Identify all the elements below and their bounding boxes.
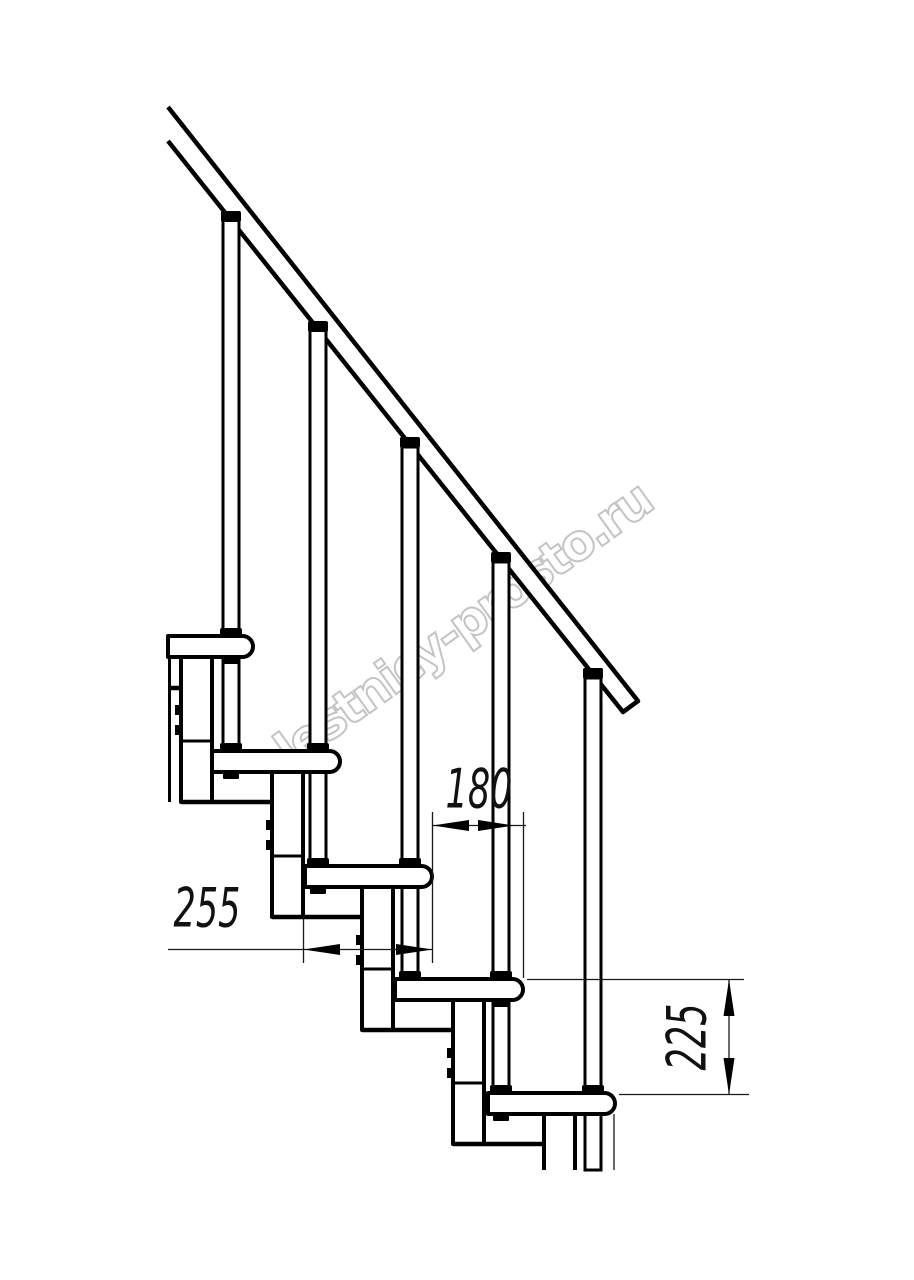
tread-collar-4b <box>490 971 512 980</box>
staircase-technical-drawing: lestnicy-prosto.ru <box>0 0 914 1280</box>
drawing-canvas: lestnicy-prosto.ru <box>0 0 914 1280</box>
tread-nut-2 <box>223 772 239 779</box>
arrowhead-left <box>304 944 341 955</box>
tread-2 <box>212 751 340 772</box>
module-bolt-2b <box>266 840 273 850</box>
tread-collar-3b <box>399 858 421 867</box>
rail-mount-3 <box>400 437 420 448</box>
arrowhead-up <box>724 980 735 1017</box>
tread-nut-5 <box>493 1114 509 1121</box>
baluster-rod-2 <box>310 331 326 867</box>
dimension-run: 180 <box>433 758 527 978</box>
stringer-module-1 <box>181 657 212 802</box>
tread-collar-3a <box>307 858 329 867</box>
tread-collar-4a <box>399 971 421 980</box>
dimension-label-rise: 225 <box>656 1004 719 1071</box>
module-bolt-4a <box>447 1048 454 1058</box>
module-bolt-3b <box>356 955 363 965</box>
dimension-rise: 225 <box>527 980 749 1095</box>
tread-3 <box>305 866 432 887</box>
module-bolt-2a <box>266 820 273 830</box>
module-bolt-1a <box>175 705 182 715</box>
tread-nut-3 <box>310 887 326 894</box>
baluster-rod-3 <box>402 447 418 979</box>
arrowhead-down <box>724 1058 735 1095</box>
stringer-module-4 <box>453 1000 484 1144</box>
stringer-module-5 <box>544 1114 575 1170</box>
tread-1 <box>168 636 253 657</box>
tread-4 <box>395 979 523 1000</box>
module-bolt-3a <box>356 935 363 945</box>
arrowhead-left <box>433 820 470 831</box>
dimension-label-depth: 255 <box>174 877 241 940</box>
module-bolt-1b <box>175 725 182 735</box>
stringer-module-3 <box>362 887 393 1030</box>
stringer-module-2 <box>272 772 303 917</box>
tread-collar-5b <box>582 1085 604 1094</box>
tread-collar-2a <box>220 743 242 752</box>
tread-5 <box>488 1093 615 1114</box>
module-bolt-4b <box>447 1068 454 1078</box>
rail-mount-4 <box>491 552 511 563</box>
tread-collar-1a <box>220 628 242 637</box>
tread-nut-1 <box>223 657 239 664</box>
rail-mount-5 <box>583 668 603 679</box>
dimension-label-run: 180 <box>446 758 513 821</box>
baluster-rod-1 <box>223 221 239 752</box>
rail-mount-2 <box>308 321 328 332</box>
tread-collar-2b <box>307 743 329 752</box>
tread-nut-4 <box>493 1000 509 1007</box>
rail-mount-1 <box>221 211 241 222</box>
tread-collar-5a <box>490 1085 512 1094</box>
